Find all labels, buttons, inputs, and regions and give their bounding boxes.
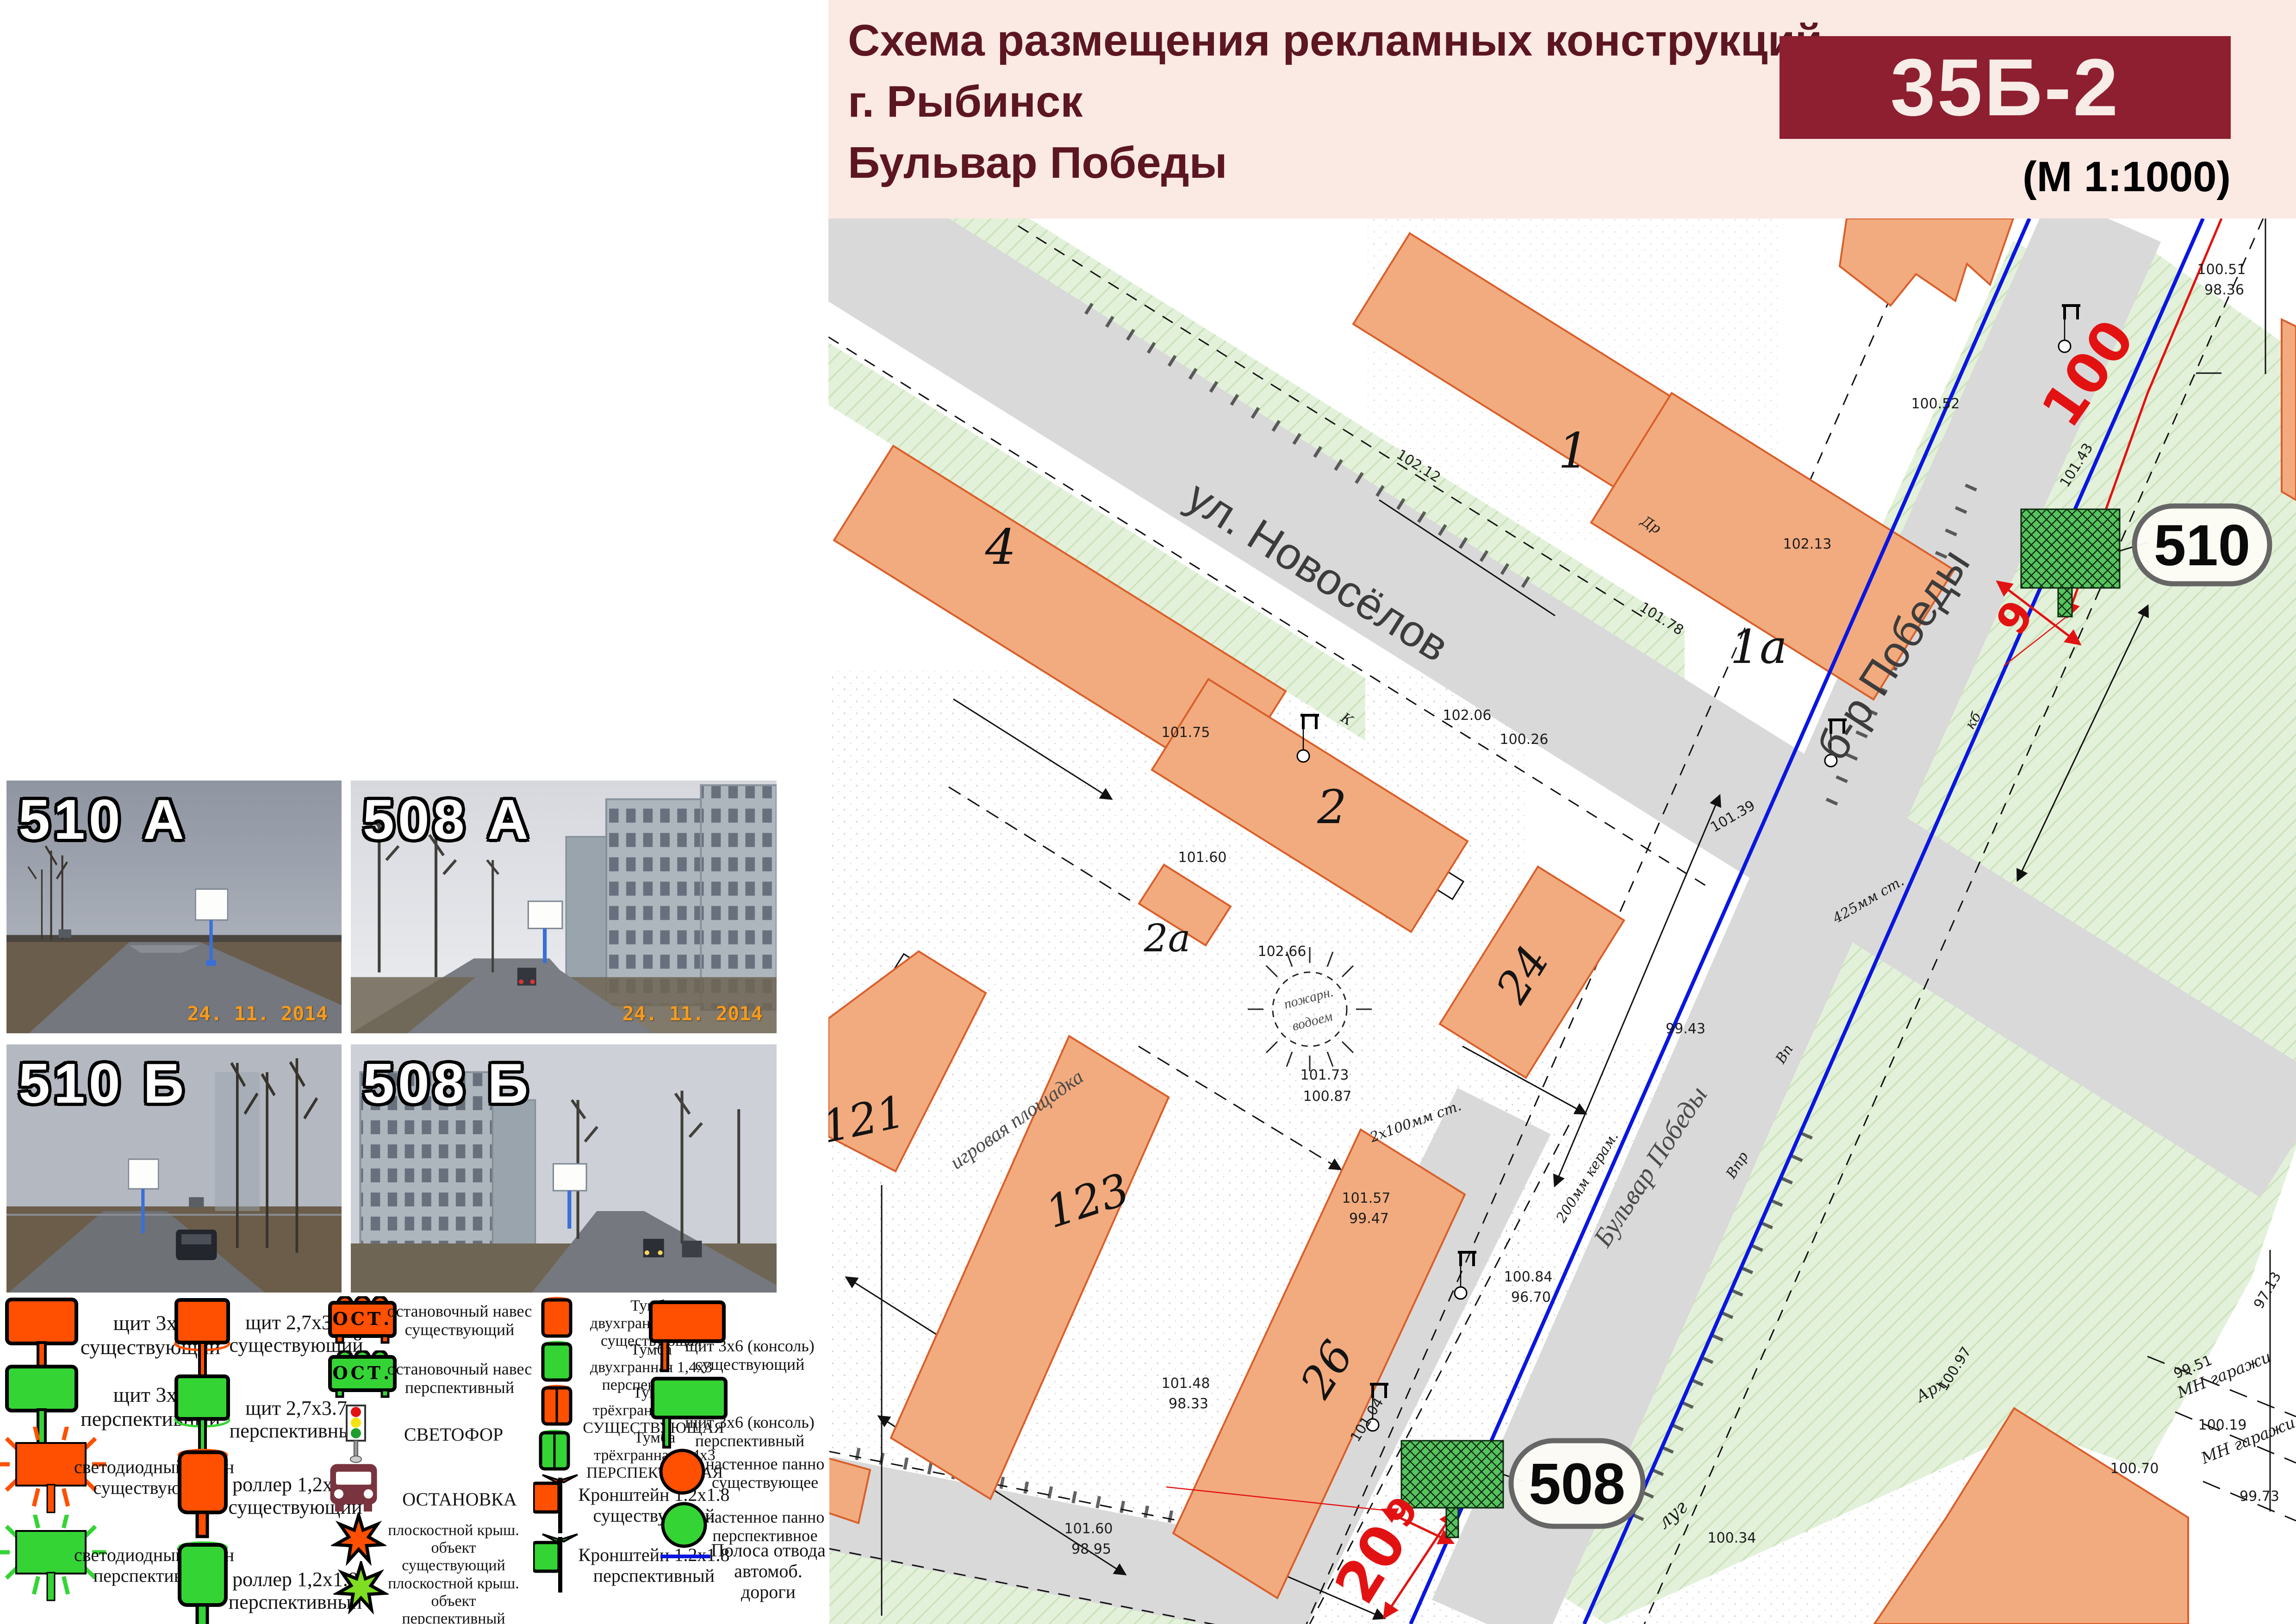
bracket-existing-icon: [533, 1473, 584, 1538]
building-number: 2а: [1143, 917, 1190, 961]
photo-510-b: 510 Б: [6, 1044, 342, 1294]
sheet-code: 35Б-2: [1890, 41, 2120, 134]
photo-510-a: 510 А 24. 11. 2014: [6, 781, 342, 1033]
map-annotation: 99.73: [2240, 1488, 2279, 1505]
map-annotation: 100.34: [1708, 1530, 1756, 1546]
sheet-code-box: 35Б-2: [1780, 36, 2231, 139]
photo-508-a: 508 А 24. 11. 2014: [351, 781, 777, 1033]
map-annotation: 101.57: [1342, 1190, 1391, 1206]
bracket-perspective-icon: [533, 1532, 584, 1597]
map-annotation: 99.47: [1349, 1211, 1389, 1227]
page-title-line1: Схема размещения рекламных конструкций: [848, 19, 1823, 63]
map-scale-label: (М 1:1000): [1870, 153, 2231, 201]
map-annotation: 99.43: [1666, 1021, 1705, 1037]
map-annotation: 98.36: [2204, 282, 2244, 298]
traffic-light-icon: [340, 1404, 373, 1466]
right-of-way-icon: [660, 1552, 713, 1563]
building-number: 1: [1558, 423, 1589, 479]
legend-item-label: остановочный навесперспективный: [383, 1360, 536, 1397]
legend-item-label: ОСТАНОВКА: [383, 1489, 536, 1510]
building-number: 2: [1317, 780, 1347, 834]
photo-508-b: 508 Б: [351, 1044, 777, 1294]
marker-board: [1401, 1441, 1503, 1508]
map-annotation: 102.13: [1783, 536, 1832, 552]
tumba2-existing-icon: [539, 1296, 576, 1343]
map-annotation: 100.51: [2197, 262, 2246, 278]
legend-item-label: плоскостной крыш. объектперспективный: [366, 1575, 541, 1624]
map-annotation: 96.70: [1511, 1289, 1551, 1305]
legend-item-label: плоскостной крыш. объектсуществующий: [366, 1522, 541, 1574]
map-annotation: 100.84: [1504, 1269, 1553, 1285]
header: Схема размещения рекламных конструкций г…: [828, 0, 2296, 219]
map-annotation: 100.19: [2198, 1417, 2247, 1433]
photo-date-stamp: 24. 11. 2014: [187, 1002, 328, 1025]
legend-item-label: Полоса отводаавтомоб. дороги: [708, 1540, 828, 1602]
map-annotation: 102.66: [1258, 943, 1307, 960]
map-annotation: 101.48: [1162, 1375, 1210, 1392]
map-annotation: 98.95: [1071, 1541, 1111, 1557]
page: { "header": { "title_line1": "Схема разм…: [0, 0, 2296, 1624]
panel-existing-icon: [657, 1448, 708, 1499]
legend-item-label: щит 3х6 (консоль)существующий: [673, 1337, 826, 1374]
building-number: 4: [985, 519, 1016, 575]
map-canvas: 510508 ул. Новосёловб-р ПобедыБульвар По…: [828, 219, 2296, 1624]
site-map: 510508 ул. Новосёловб-р ПобедыБульвар По…: [828, 219, 2296, 1624]
map-annotation: 100.70: [2110, 1461, 2159, 1477]
photo-date-stamp: 24. 11. 2014: [622, 1002, 763, 1025]
building-number: 1а: [1730, 620, 1787, 674]
legend: щит 3х6существующийщит 3х6перспективныйс…: [0, 1293, 829, 1624]
marker-board: [2021, 509, 2120, 588]
building-e-sliver: [2282, 319, 2296, 500]
map-annotation: 98.33: [1169, 1396, 1208, 1412]
photo-label: 510 А: [19, 787, 188, 852]
page-title-line3: Бульвар Победы: [848, 141, 1227, 185]
legend-item-label: остановочный навессуществующий: [383, 1302, 536, 1339]
legend-item-label: СВЕТОФОР: [384, 1424, 523, 1445]
photo-label: 508 А: [363, 787, 532, 852]
bus-stop-icon: [327, 1462, 382, 1517]
map-annotation: 100.26: [1500, 731, 1549, 748]
photo-label: 508 Б: [363, 1051, 532, 1116]
marker-stem: [2058, 588, 2072, 617]
map-cut-corner: [2189, 1512, 2296, 1624]
map-annotation: 100.52: [1911, 396, 1960, 412]
roller-existing-icon: [176, 1448, 231, 1543]
page-title-line2: г. Рыбинск: [848, 80, 1083, 124]
legend-item-label: щит 3х6 (консоль)перспективный: [673, 1413, 826, 1450]
marker-number: 510: [2154, 513, 2251, 578]
photo-label: 510 Б: [19, 1051, 187, 1116]
tumba2-perspective-icon: [539, 1340, 576, 1387]
map-annotation: 101.60: [1064, 1521, 1113, 1537]
map-annotation: 101.73: [1300, 1067, 1349, 1083]
legend-item-label: настенное панносуществующее: [703, 1455, 828, 1492]
map-annotation: 101.75: [1162, 725, 1210, 741]
tumba3-existing-icon: [539, 1384, 576, 1430]
map-annotation: 100.87: [1303, 1088, 1352, 1105]
roller-perspective-icon: [176, 1540, 231, 1624]
marker-number: 508: [1529, 1452, 1625, 1517]
marker-stem: [1446, 1508, 1458, 1537]
map-annotation: 102.06: [1443, 707, 1492, 724]
map-annotation: 101.60: [1178, 849, 1227, 866]
tumba3-perspective-icon: [537, 1429, 574, 1475]
